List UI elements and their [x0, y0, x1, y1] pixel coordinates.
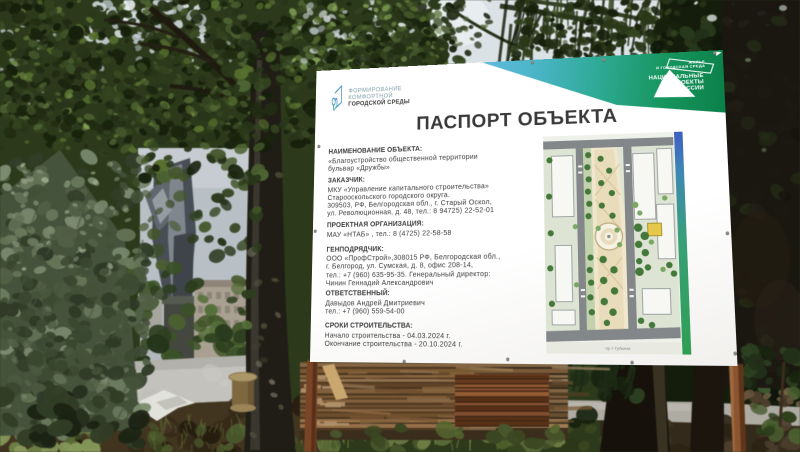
svg-text:пр-т Губкина: пр-т Губкина: [605, 346, 630, 351]
